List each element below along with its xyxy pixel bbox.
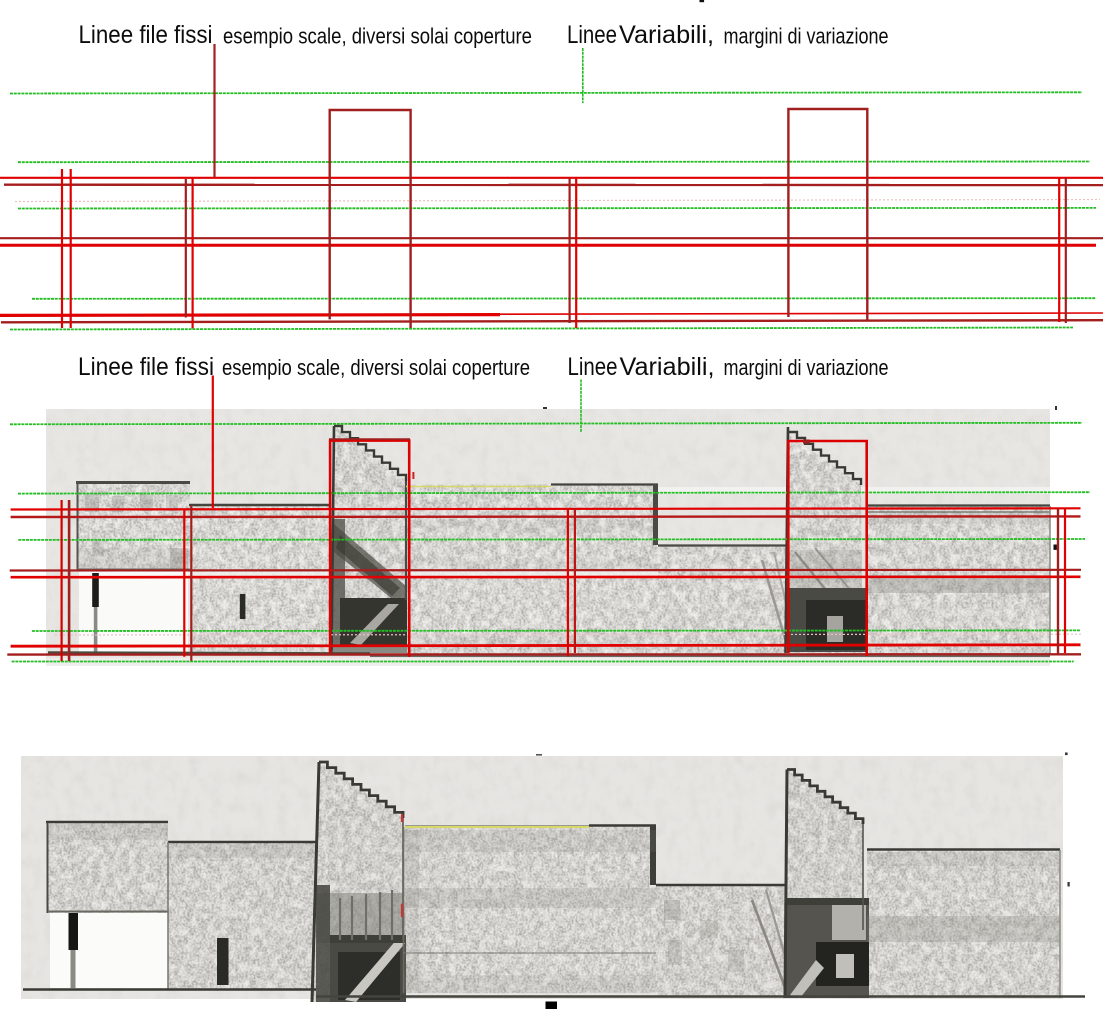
- svg-text:Linee file fissi: Linee file fissi: [79, 21, 213, 49]
- svg-text:margini di variazione: margini di variazione: [724, 23, 889, 48]
- svg-text:Linee: Linee: [567, 21, 617, 49]
- svg-text:Variabili,: Variabili,: [620, 353, 715, 381]
- svg-text:Variabili,: Variabili,: [619, 21, 714, 49]
- svg-text:esempio scale, diversi solai c: esempio scale, diversi solai coperture: [222, 355, 530, 380]
- svg-text:Linee: Linee: [568, 353, 618, 381]
- svg-text:Linee file fissi: Linee file fissi: [78, 353, 214, 381]
- svg-text:esempio scale, diversi solai c: esempio scale, diversi solai coperture: [223, 23, 532, 48]
- svg-text:margini di variazione: margini di variazione: [724, 355, 889, 380]
